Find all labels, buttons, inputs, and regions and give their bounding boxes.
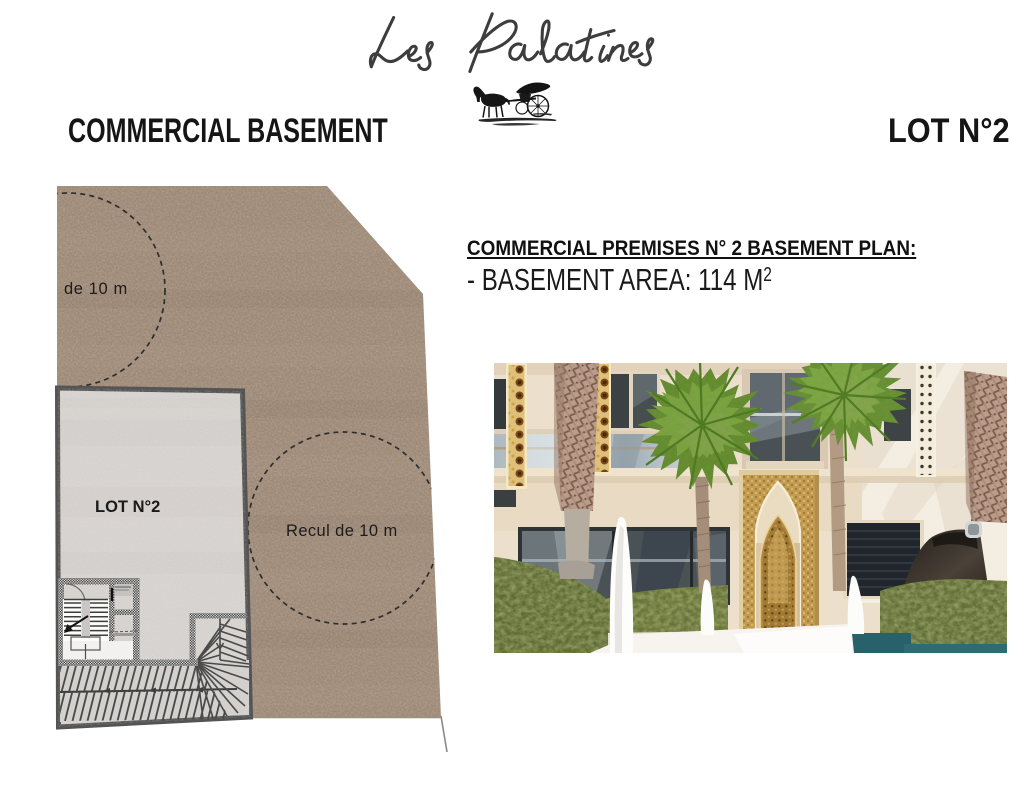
svg-text:de 10 m: de 10 m (64, 280, 128, 298)
svg-text:LOT N°2: LOT N°2 (95, 498, 160, 516)
svg-text:Recul de 10 m: Recul de 10 m (286, 522, 398, 540)
